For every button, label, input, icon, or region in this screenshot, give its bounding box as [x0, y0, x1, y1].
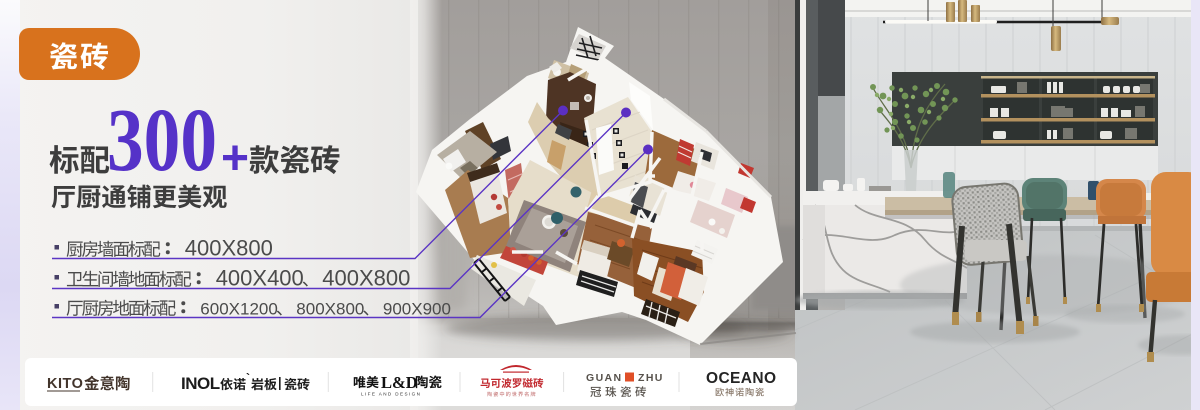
svg-text:`: `	[246, 371, 250, 385]
svg-text:L&D: L&D	[381, 373, 418, 392]
svg-text:GUAN: GUAN	[586, 372, 623, 384]
svg-text:OCEANO: OCEANO	[706, 370, 776, 387]
svg-text:KITO: KITO	[47, 376, 83, 392]
svg-text:ZHU: ZHU	[638, 372, 664, 384]
svg-text:INOL: INOL	[181, 374, 220, 393]
svg-text:LIFE AND DESIGN: LIFE AND DESIGN	[361, 392, 421, 397]
